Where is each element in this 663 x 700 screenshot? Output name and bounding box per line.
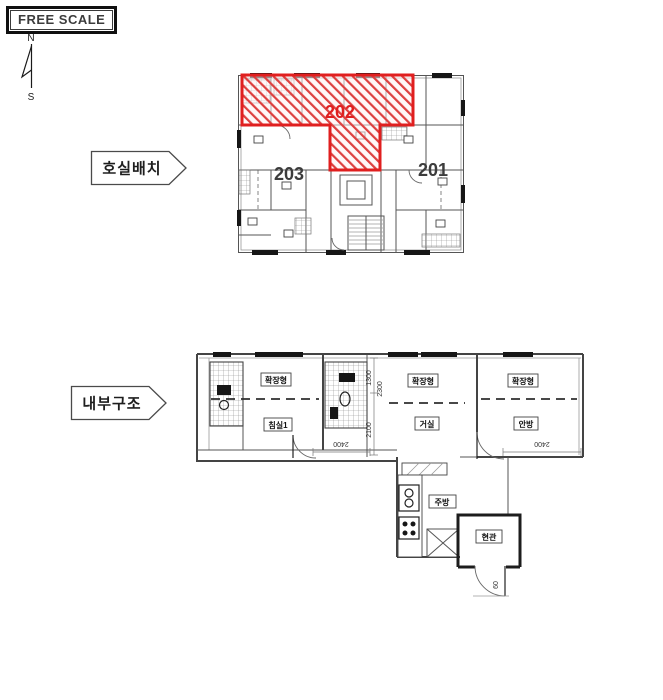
horizontal-dimensions: 2400 2400 xyxy=(313,440,581,456)
vertical-dimensions: 1300 2300 2100 xyxy=(366,358,384,455)
expansion-dashed-lines xyxy=(211,399,577,403)
section-label-text: 내부구조 xyxy=(82,396,141,413)
elevator xyxy=(340,175,372,205)
dim-2400-right: 2400 xyxy=(534,440,550,447)
room-kitchen: 주방 xyxy=(435,497,450,507)
room-master: 안방 xyxy=(519,419,534,429)
unit-layout-plan: 202 203 201 xyxy=(236,70,466,260)
dim-2300: 2300 xyxy=(377,381,384,397)
section-label-unit-layout: 호실배치 xyxy=(90,150,189,186)
compass-pointer xyxy=(22,46,32,77)
north-arrow: N S xyxy=(16,30,48,104)
dim-2400-left: 2400 xyxy=(333,440,349,447)
room-ext-left: 확장형 xyxy=(265,375,287,385)
bathroom-mid xyxy=(325,362,367,428)
staircase xyxy=(348,216,384,250)
free-scale-label: FREE SCALE xyxy=(10,10,113,30)
unit-202-number: 202 xyxy=(325,102,355,122)
section-label-interior: 내부구조 xyxy=(70,385,169,421)
unit-202-highlight xyxy=(242,75,413,170)
room-ext-right: 확장형 xyxy=(512,376,534,386)
compass-north-label: N xyxy=(27,33,34,44)
entrance-area: 60 xyxy=(458,515,520,596)
room-living: 거실 xyxy=(420,419,435,429)
bathroom-left xyxy=(210,362,243,426)
dim-2100: 2100 xyxy=(366,422,373,438)
unit-201-number: 201 xyxy=(418,160,448,180)
room-bed1: 침실1 xyxy=(268,420,288,430)
interior-structure-plan: 1300 2300 2100 2400 2400 확장형 침실1 확장형 거실 … xyxy=(193,345,595,603)
unit-203-number: 203 xyxy=(274,164,304,184)
dim-1300: 1300 xyxy=(366,370,373,386)
kitchen-fixtures xyxy=(398,463,459,557)
dim-door-60: 60 xyxy=(493,581,500,589)
room-ext-mid: 확장형 xyxy=(412,376,434,386)
room-entrance: 현관 xyxy=(482,532,497,542)
compass-south-label: S xyxy=(28,92,35,103)
floorplan-sheet: { "colors": { "highlight": "#e02020", "l… xyxy=(0,0,663,700)
section-label-text: 호실배치 xyxy=(102,161,161,178)
door-swings xyxy=(293,432,504,459)
